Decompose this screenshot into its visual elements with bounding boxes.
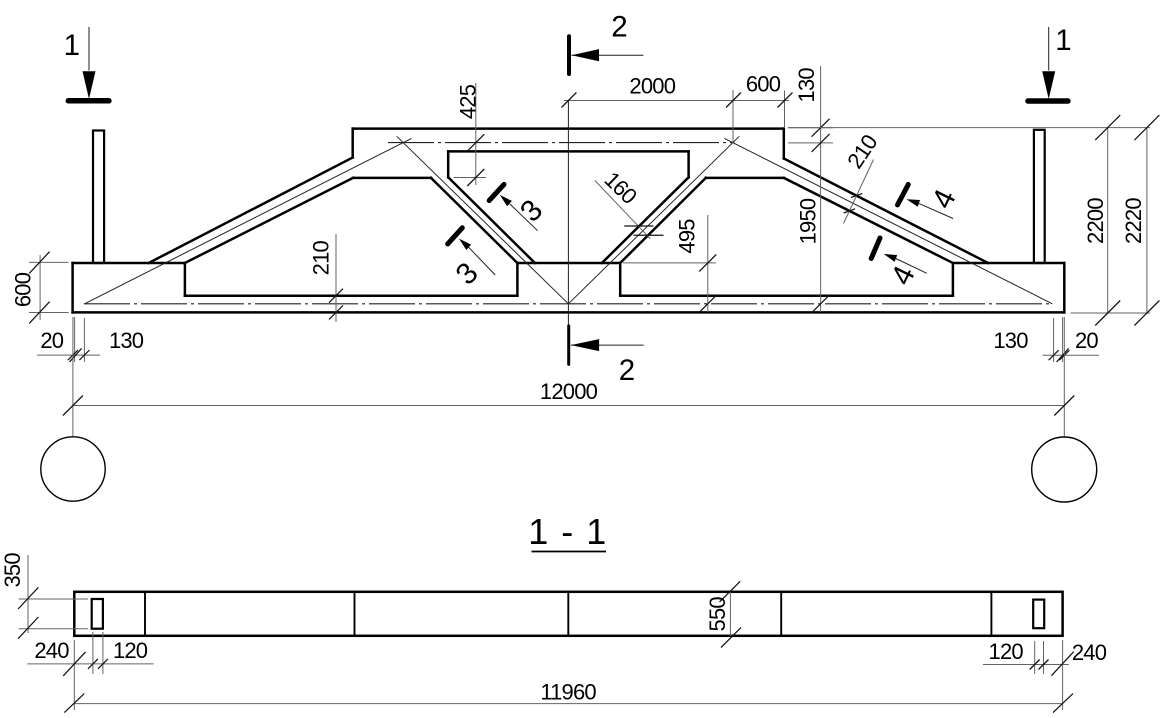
svg-text:120: 120 [113, 638, 148, 663]
svg-text:11960: 11960 [540, 680, 596, 705]
svg-text:20: 20 [40, 328, 63, 353]
svg-text:2200: 2200 [1083, 198, 1108, 244]
svg-text:120: 120 [989, 639, 1024, 664]
svg-text:130: 130 [993, 328, 1028, 353]
svg-text:350: 350 [0, 553, 25, 588]
svg-text:130: 130 [794, 68, 819, 103]
svg-text:2220: 2220 [1121, 198, 1146, 244]
svg-text:20: 20 [1075, 328, 1098, 353]
svg-text:2: 2 [611, 11, 627, 44]
svg-text:1 - 1: 1 - 1 [528, 511, 608, 552]
svg-text:2: 2 [619, 354, 635, 387]
svg-text:1950: 1950 [796, 198, 821, 244]
svg-text:1: 1 [64, 29, 80, 62]
svg-text:12000: 12000 [540, 379, 598, 404]
svg-text:1: 1 [1055, 24, 1071, 57]
svg-text:600: 600 [746, 72, 781, 97]
svg-text:210: 210 [309, 240, 334, 275]
svg-text:2000: 2000 [629, 74, 675, 99]
svg-text:550: 550 [705, 597, 730, 632]
svg-text:600: 600 [10, 272, 35, 307]
svg-text:425: 425 [456, 84, 481, 119]
svg-text:130: 130 [109, 328, 144, 353]
svg-text:495: 495 [675, 219, 700, 254]
svg-text:240: 240 [1072, 640, 1107, 665]
svg-text:240: 240 [34, 638, 69, 663]
